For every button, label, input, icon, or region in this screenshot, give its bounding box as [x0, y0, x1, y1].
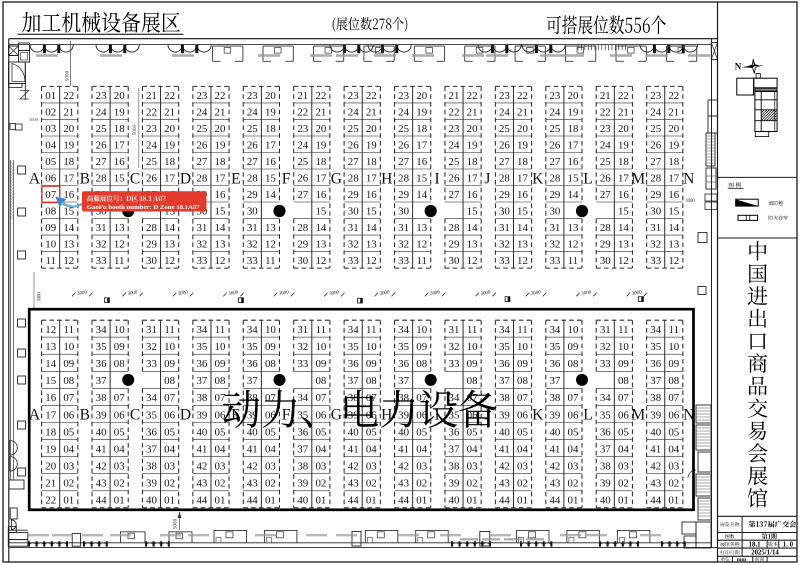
- svg-text:32: 32: [499, 239, 510, 251]
- svg-text:01: 01: [366, 495, 377, 507]
- svg-text:15: 15: [467, 206, 478, 218]
- svg-text:16: 16: [618, 189, 629, 201]
- svg-text:10: 10: [45, 239, 56, 251]
- svg-text:25: 25: [247, 123, 258, 135]
- svg-text:04: 04: [45, 140, 56, 152]
- svg-text:24: 24: [247, 107, 258, 119]
- svg-text:17: 17: [618, 173, 629, 185]
- svg-text:22: 22: [467, 90, 478, 102]
- svg-text:17: 17: [517, 173, 528, 185]
- svg-text:32: 32: [549, 239, 560, 251]
- svg-text:02: 02: [366, 478, 377, 490]
- svg-text:22: 22: [618, 90, 629, 102]
- svg-text:35: 35: [600, 409, 611, 421]
- svg-text:34: 34: [297, 392, 308, 404]
- svg-text:21: 21: [146, 90, 157, 102]
- svg-text:39: 39: [146, 478, 157, 490]
- svg-text:23: 23: [146, 123, 157, 135]
- svg-text:35: 35: [348, 341, 359, 353]
- svg-text:03: 03: [63, 460, 74, 472]
- svg-text:01: 01: [164, 495, 175, 507]
- svg-text:03: 03: [366, 460, 377, 472]
- svg-text:14: 14: [467, 222, 478, 234]
- svg-text:35: 35: [650, 341, 661, 353]
- svg-text:03: 03: [215, 460, 226, 472]
- svg-text:10: 10: [114, 324, 125, 336]
- svg-text:18: 18: [517, 156, 528, 168]
- svg-text:15: 15: [416, 173, 427, 185]
- svg-text:08: 08: [366, 375, 377, 387]
- svg-text:20: 20: [114, 90, 125, 102]
- svg-text:30: 30: [499, 206, 510, 218]
- svg-text:40: 40: [247, 426, 258, 438]
- svg-text:06: 06: [568, 409, 579, 421]
- svg-text:02: 02: [315, 478, 326, 490]
- svg-text:27: 27: [449, 189, 460, 201]
- svg-text:24: 24: [96, 107, 107, 119]
- svg-text:18: 18: [265, 123, 276, 135]
- svg-text:28: 28: [650, 173, 661, 185]
- svg-text:10: 10: [416, 324, 427, 336]
- svg-text:37: 37: [96, 375, 107, 387]
- svg-text:05: 05: [265, 426, 276, 438]
- svg-text:19: 19: [618, 140, 629, 152]
- svg-text:12: 12: [315, 255, 326, 267]
- svg-text:04: 04: [114, 443, 125, 455]
- svg-text:A: A: [29, 171, 41, 188]
- svg-text:20: 20: [215, 123, 226, 135]
- svg-text:02: 02: [668, 478, 679, 490]
- svg-text:39: 39: [96, 409, 107, 421]
- svg-text:03: 03: [164, 460, 175, 472]
- svg-text:40: 40: [449, 495, 460, 507]
- svg-text:39: 39: [449, 478, 460, 490]
- svg-text:37: 37: [196, 375, 207, 387]
- svg-text:11: 11: [366, 324, 377, 336]
- svg-text:23: 23: [398, 90, 409, 102]
- svg-text:08: 08: [668, 375, 679, 387]
- svg-text:11: 11: [669, 324, 680, 336]
- svg-text:37: 37: [398, 375, 409, 387]
- svg-text:23: 23: [96, 90, 107, 102]
- svg-text:20: 20: [467, 123, 478, 135]
- svg-text:44: 44: [549, 495, 560, 507]
- svg-text:14: 14: [315, 222, 326, 234]
- svg-text:38: 38: [398, 392, 409, 404]
- svg-text:01: 01: [215, 495, 226, 507]
- svg-text:41: 41: [398, 443, 409, 455]
- svg-text:14: 14: [45, 358, 56, 370]
- svg-text:26: 26: [449, 173, 460, 185]
- svg-text:30: 30: [650, 206, 661, 218]
- svg-text:38: 38: [297, 460, 308, 472]
- svg-text:36: 36: [600, 426, 611, 438]
- svg-text:43: 43: [549, 478, 560, 490]
- svg-text:40: 40: [549, 426, 560, 438]
- svg-text:02: 02: [568, 478, 579, 490]
- svg-text:32: 32: [600, 341, 611, 353]
- svg-text:04: 04: [164, 443, 175, 455]
- svg-text:11: 11: [64, 324, 75, 336]
- svg-text:09: 09: [114, 341, 125, 353]
- svg-text:11: 11: [618, 324, 629, 336]
- svg-text:31: 31: [499, 222, 510, 234]
- svg-text:12: 12: [215, 255, 226, 267]
- svg-text:28: 28: [499, 173, 510, 185]
- svg-text:16: 16: [416, 156, 427, 168]
- svg-text:13: 13: [265, 222, 276, 234]
- svg-text:36: 36: [297, 426, 308, 438]
- svg-text:21: 21: [215, 107, 226, 119]
- svg-text:07: 07: [618, 392, 629, 404]
- svg-text:37: 37: [297, 443, 308, 455]
- svg-text:28: 28: [96, 173, 107, 185]
- svg-text:07: 07: [215, 392, 226, 404]
- svg-text:24: 24: [297, 140, 308, 152]
- svg-text:31: 31: [196, 222, 207, 234]
- svg-text:36: 36: [96, 358, 107, 370]
- svg-text:12: 12: [467, 255, 478, 267]
- svg-text:31: 31: [600, 324, 611, 336]
- svg-text:04: 04: [315, 443, 326, 455]
- svg-text:20: 20: [416, 90, 427, 102]
- svg-text:J: J: [484, 171, 490, 188]
- svg-text:01: 01: [416, 495, 427, 507]
- svg-text:13: 13: [467, 239, 478, 251]
- svg-text:34: 34: [650, 324, 661, 336]
- svg-text:08: 08: [416, 358, 427, 370]
- svg-text:09: 09: [668, 358, 679, 370]
- svg-text:26: 26: [348, 140, 359, 152]
- svg-text:07: 07: [265, 392, 276, 404]
- svg-text:A: A: [29, 406, 41, 423]
- svg-text:02: 02: [467, 478, 478, 490]
- svg-text:05: 05: [114, 426, 125, 438]
- svg-text:40: 40: [650, 426, 661, 438]
- svg-text:43: 43: [247, 478, 258, 490]
- svg-text:23: 23: [348, 90, 359, 102]
- svg-text:33: 33: [398, 255, 409, 267]
- svg-text:12: 12: [366, 255, 377, 267]
- svg-text:35: 35: [196, 341, 207, 353]
- svg-text:02: 02: [215, 478, 226, 490]
- svg-text:13: 13: [416, 222, 427, 234]
- svg-text:13: 13: [315, 239, 326, 251]
- svg-text:19: 19: [668, 140, 679, 152]
- svg-text:20: 20: [618, 123, 629, 135]
- svg-text:19: 19: [568, 107, 579, 119]
- svg-text:H: H: [381, 171, 392, 188]
- svg-text:30: 30: [549, 206, 560, 218]
- svg-text:B: B: [80, 406, 90, 423]
- svg-text:42: 42: [650, 460, 661, 472]
- svg-text:37: 37: [499, 375, 510, 387]
- svg-text:08: 08: [164, 375, 175, 387]
- svg-text:22: 22: [45, 495, 56, 507]
- svg-text:24: 24: [600, 140, 611, 152]
- svg-text:38: 38: [650, 392, 661, 404]
- svg-text:29: 29: [348, 189, 359, 201]
- svg-text:GaoFu booth number: D Zone 18.: GaoFu booth number: D Zone 18.1A07: [87, 204, 201, 211]
- svg-text:15: 15: [668, 206, 679, 218]
- svg-text:18: 18: [568, 123, 579, 135]
- svg-text:08: 08: [63, 375, 74, 387]
- svg-text:23: 23: [549, 90, 560, 102]
- svg-text:28: 28: [549, 173, 560, 185]
- svg-text:04: 04: [618, 443, 629, 455]
- svg-text:32: 32: [650, 239, 661, 251]
- svg-text:06: 06: [517, 409, 528, 421]
- svg-text:24: 24: [650, 107, 661, 119]
- svg-text:03: 03: [467, 460, 478, 472]
- svg-text:13: 13: [618, 239, 629, 251]
- svg-text:13: 13: [568, 222, 579, 234]
- svg-text:23: 23: [600, 123, 611, 135]
- svg-text:03: 03: [668, 460, 679, 472]
- svg-text:11: 11: [517, 324, 528, 336]
- svg-text:24: 24: [348, 107, 359, 119]
- svg-text:18: 18: [668, 156, 679, 168]
- svg-text:N: N: [683, 406, 694, 423]
- svg-text:03: 03: [568, 460, 579, 472]
- svg-text:3000: 3000: [29, 117, 39, 122]
- svg-text:35: 35: [398, 341, 409, 353]
- svg-text:02: 02: [517, 478, 528, 490]
- svg-text:13: 13: [164, 239, 175, 251]
- svg-text:08: 08: [568, 358, 579, 370]
- svg-text:44: 44: [196, 495, 207, 507]
- svg-text:24: 24: [196, 107, 207, 119]
- svg-text:32: 32: [398, 239, 409, 251]
- svg-text:14: 14: [618, 222, 629, 234]
- svg-text:14: 14: [416, 189, 427, 201]
- svg-text:40: 40: [196, 426, 207, 438]
- svg-text:30: 30: [348, 206, 359, 218]
- svg-text:G: G: [331, 406, 342, 423]
- svg-text:15: 15: [517, 206, 528, 218]
- svg-text:15: 15: [265, 173, 276, 185]
- svg-text:11: 11: [568, 255, 579, 267]
- svg-text:01: 01: [315, 495, 326, 507]
- svg-text:32: 32: [449, 341, 460, 353]
- svg-text:27: 27: [196, 156, 207, 168]
- svg-text:21: 21: [449, 90, 460, 102]
- svg-text:21: 21: [63, 107, 74, 119]
- svg-text:11: 11: [114, 255, 125, 267]
- svg-text:22: 22: [449, 107, 460, 119]
- svg-text:39: 39: [549, 409, 560, 421]
- svg-text:43: 43: [348, 478, 359, 490]
- svg-text:27: 27: [348, 156, 359, 168]
- svg-text:10: 10: [568, 324, 579, 336]
- svg-text:11: 11: [45, 255, 56, 267]
- svg-text:04: 04: [265, 443, 276, 455]
- svg-text:21: 21: [600, 90, 611, 102]
- svg-text:42: 42: [196, 460, 207, 472]
- svg-text:K: K: [532, 171, 544, 188]
- svg-text:33: 33: [449, 358, 460, 370]
- svg-text:36: 36: [549, 358, 560, 370]
- svg-text:38: 38: [196, 392, 207, 404]
- svg-text:28: 28: [247, 173, 258, 185]
- svg-text:3000: 3000: [38, 292, 43, 302]
- svg-text:16: 16: [114, 156, 125, 168]
- svg-text:24: 24: [499, 107, 510, 119]
- svg-text:06: 06: [164, 409, 175, 421]
- svg-text:36: 36: [196, 358, 207, 370]
- svg-text:32: 32: [348, 239, 359, 251]
- svg-text:10: 10: [315, 341, 326, 353]
- svg-text:5000: 5000: [173, 518, 179, 529]
- svg-text:16: 16: [265, 156, 276, 168]
- svg-text:09: 09: [315, 358, 326, 370]
- svg-text:37: 37: [146, 443, 157, 455]
- svg-text:12: 12: [63, 255, 74, 267]
- svg-text:20: 20: [517, 123, 528, 135]
- svg-text:21: 21: [164, 107, 175, 119]
- svg-text:08: 08: [45, 206, 56, 218]
- svg-text:25: 25: [348, 123, 359, 135]
- svg-text:15: 15: [366, 206, 377, 218]
- svg-text:04: 04: [215, 443, 226, 455]
- svg-text:19: 19: [114, 107, 125, 119]
- svg-text:18: 18: [45, 426, 56, 438]
- svg-text:03: 03: [517, 460, 528, 472]
- svg-text:29: 29: [549, 189, 560, 201]
- svg-text:43: 43: [196, 478, 207, 490]
- svg-text:18: 18: [366, 156, 377, 168]
- svg-text:25: 25: [549, 123, 560, 135]
- svg-text:28: 28: [196, 173, 207, 185]
- svg-text:18: 18: [215, 156, 226, 168]
- svg-text:34: 34: [146, 392, 157, 404]
- svg-text:29: 29: [146, 239, 157, 251]
- svg-text:25: 25: [398, 123, 409, 135]
- svg-text:22: 22: [600, 107, 611, 119]
- svg-text:23: 23: [297, 123, 308, 135]
- svg-text:01: 01: [568, 495, 579, 507]
- svg-text:09: 09: [618, 358, 629, 370]
- svg-text:40: 40: [600, 495, 611, 507]
- svg-text:28: 28: [600, 222, 611, 234]
- svg-text:34: 34: [96, 324, 107, 336]
- svg-text:25: 25: [196, 123, 207, 135]
- svg-text:14: 14: [63, 222, 74, 234]
- svg-text:41: 41: [650, 443, 661, 455]
- svg-text:12: 12: [416, 239, 427, 251]
- svg-text:17: 17: [164, 173, 175, 185]
- svg-text:L: L: [583, 406, 592, 423]
- svg-text:13: 13: [366, 239, 377, 251]
- svg-text:05: 05: [416, 426, 427, 438]
- svg-text:11: 11: [215, 324, 226, 336]
- svg-text:42: 42: [247, 460, 258, 472]
- svg-text:20: 20: [265, 90, 276, 102]
- svg-text:10: 10: [366, 341, 377, 353]
- svg-text:12: 12: [568, 239, 579, 251]
- svg-text:21: 21: [517, 107, 528, 119]
- svg-text:06: 06: [114, 409, 125, 421]
- svg-text:32: 32: [146, 341, 157, 353]
- svg-text:27: 27: [398, 156, 409, 168]
- svg-text:31: 31: [650, 222, 661, 234]
- svg-text:26: 26: [247, 140, 258, 152]
- svg-text:30: 30: [297, 255, 308, 267]
- svg-text:42: 42: [398, 460, 409, 472]
- svg-text:17: 17: [416, 140, 427, 152]
- svg-text:44: 44: [398, 495, 409, 507]
- svg-text:B: B: [80, 171, 90, 188]
- svg-text:04: 04: [63, 443, 74, 455]
- svg-text:44: 44: [247, 495, 258, 507]
- svg-text:26: 26: [196, 140, 207, 152]
- svg-text:11: 11: [265, 255, 276, 267]
- svg-text:28: 28: [146, 222, 157, 234]
- svg-text:36: 36: [650, 358, 661, 370]
- svg-text:06: 06: [63, 409, 74, 421]
- svg-text:40: 40: [297, 495, 308, 507]
- svg-text:04: 04: [366, 443, 377, 455]
- svg-text:28: 28: [398, 173, 409, 185]
- svg-text:40: 40: [96, 426, 107, 438]
- svg-text:41: 41: [549, 443, 560, 455]
- svg-text:34: 34: [499, 324, 510, 336]
- svg-text:16: 16: [366, 189, 377, 201]
- svg-text:02: 02: [45, 107, 56, 119]
- svg-text:E: E: [231, 171, 240, 188]
- svg-text:M: M: [631, 171, 645, 188]
- svg-text:18: 18: [164, 156, 175, 168]
- svg-text:18: 18: [315, 156, 326, 168]
- svg-text:29: 29: [297, 239, 308, 251]
- svg-text:29: 29: [499, 189, 510, 201]
- svg-text:37: 37: [549, 375, 560, 387]
- svg-text:30: 30: [247, 206, 258, 218]
- svg-text:01: 01: [668, 495, 679, 507]
- svg-text:36: 36: [348, 358, 359, 370]
- svg-text:30: 30: [146, 255, 157, 267]
- svg-text:13: 13: [114, 222, 125, 234]
- svg-text:09: 09: [366, 358, 377, 370]
- svg-text:13: 13: [517, 239, 528, 251]
- svg-text:40: 40: [499, 426, 510, 438]
- svg-text:11: 11: [316, 324, 327, 336]
- svg-text:M: M: [631, 406, 645, 423]
- svg-text:18.1: 18.1: [749, 541, 761, 548]
- svg-text:15: 15: [315, 206, 326, 218]
- svg-text:31: 31: [549, 222, 560, 234]
- svg-text:07: 07: [517, 392, 528, 404]
- svg-text:13: 13: [45, 341, 56, 353]
- svg-text:02: 02: [416, 478, 427, 490]
- svg-text:36: 36: [449, 426, 460, 438]
- svg-text:F: F: [282, 171, 291, 188]
- svg-text:01: 01: [265, 495, 276, 507]
- svg-text:35: 35: [499, 341, 510, 353]
- svg-text:04: 04: [568, 443, 579, 455]
- svg-text:19: 19: [467, 140, 478, 152]
- svg-text:27: 27: [650, 156, 661, 168]
- svg-text:28: 28: [449, 222, 460, 234]
- svg-text:25: 25: [146, 156, 157, 168]
- svg-text:27: 27: [600, 189, 611, 201]
- svg-text:42: 42: [348, 460, 359, 472]
- svg-text:29: 29: [449, 239, 460, 251]
- svg-text:09: 09: [467, 358, 478, 370]
- svg-text:06: 06: [618, 409, 629, 421]
- svg-text:17: 17: [568, 140, 579, 152]
- svg-text:2025/1/14: 2025/1/14: [751, 550, 779, 557]
